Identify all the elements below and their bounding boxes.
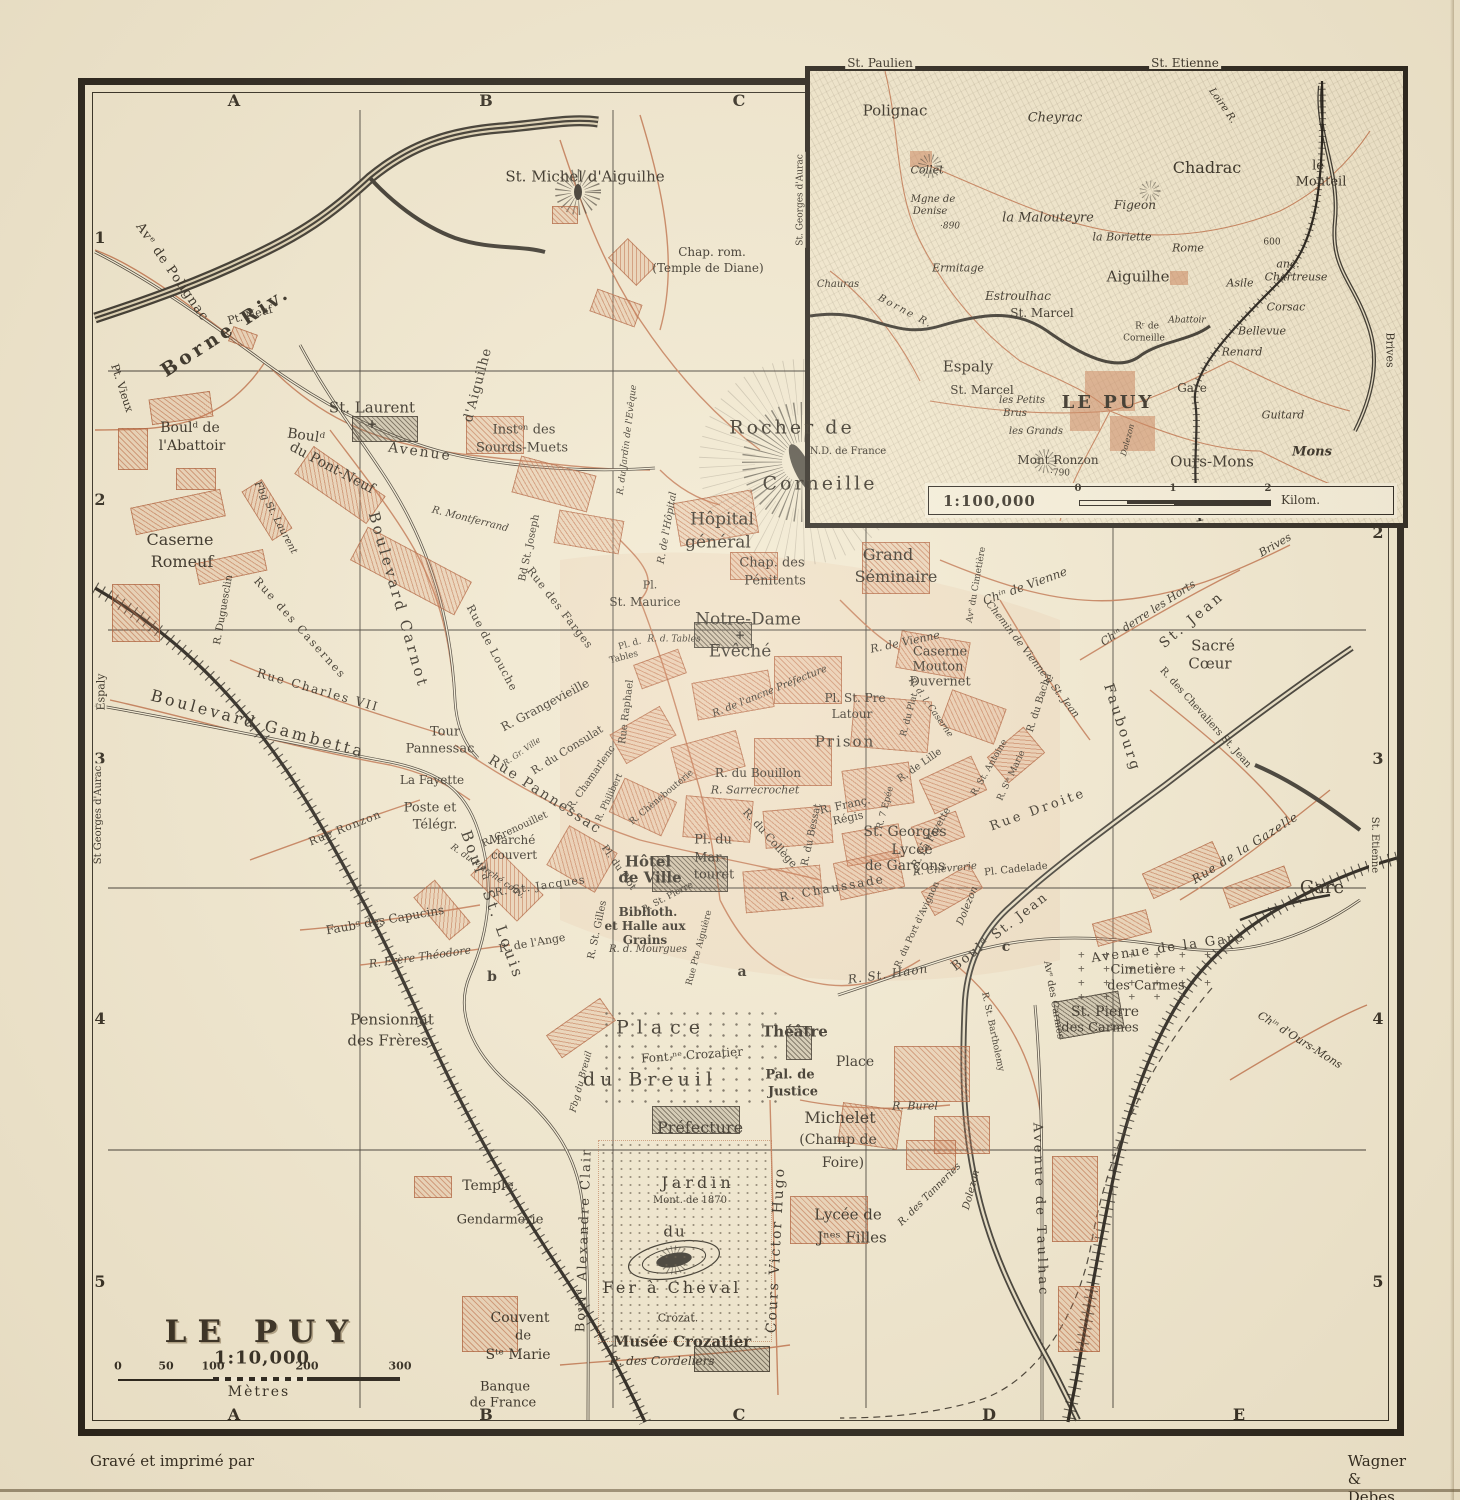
paper-edge-right <box>1450 0 1454 1500</box>
engraver-caption: Gravé et imprimé par <box>90 1452 254 1470</box>
scale-bar-segment-2 <box>307 1377 400 1381</box>
map-page: 1:100,000 Kilom. LE PUY 1:10,000 Mètres … <box>0 0 1460 1500</box>
inset-scale-segment-half <box>1127 501 1174 504</box>
map-scale-ratio: 1:10,000 <box>214 1348 310 1369</box>
inset-scale-bar: 1:100,000 Kilom. <box>928 486 1394 515</box>
inset-scale-segment <box>1174 500 1271 506</box>
inset-town-blocks <box>910 151 1188 451</box>
inset-scale-label: 1:100,000 <box>943 492 1036 510</box>
scale-bar-unit: Mètres <box>228 1384 290 1400</box>
inset-linework <box>810 71 1403 523</box>
inset-railway <box>1195 81 1323 521</box>
paper-edge-bottom <box>0 1489 1460 1492</box>
map-title: LE PUY <box>165 1314 360 1350</box>
inset-map <box>805 66 1408 528</box>
inset-scale-unit: Kilom. <box>1281 493 1320 507</box>
scale-bar-segment-1 <box>213 1377 307 1381</box>
publisher-caption: Wagner & Debes, Leipzig. <box>1348 1452 1408 1500</box>
inset-roads <box>830 71 1380 521</box>
